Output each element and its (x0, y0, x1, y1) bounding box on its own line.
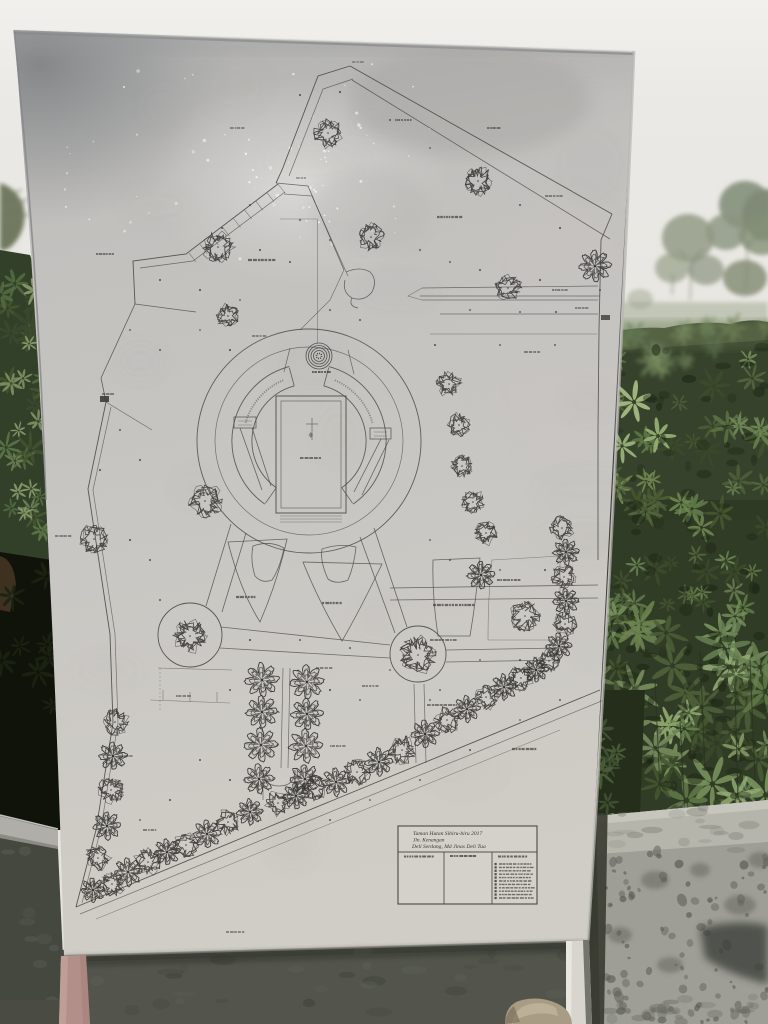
svg-text:Taman Hutan Sibiru-biru 2017: Taman Hutan Sibiru-biru 2017 (413, 831, 482, 837)
svg-text:Jln. Kenangan: Jln. Kenangan (413, 838, 445, 844)
svg-text:Deli Serdang, Md Jinas Deli Tu: Deli Serdang, Md Jinas Deli Tua (411, 844, 486, 850)
